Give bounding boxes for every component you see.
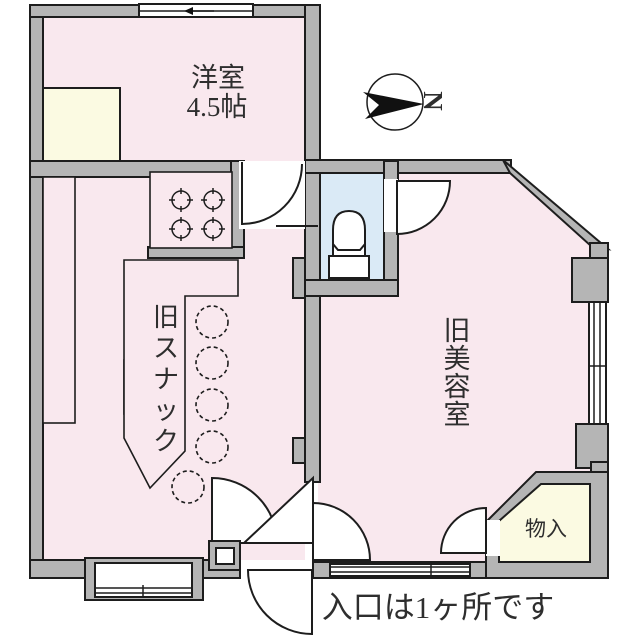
- window-right: [589, 302, 606, 424]
- side-counter: [43, 177, 75, 423]
- entrance-caption: 入口は1ヶ所です: [322, 590, 555, 625]
- window-bay-bottom-left: [95, 563, 192, 597]
- compass-north-label: N: [418, 91, 448, 111]
- stove-icon: [150, 172, 232, 248]
- window-top: [139, 4, 253, 17]
- room-western-label: 洋室: [191, 63, 245, 93]
- closet: [43, 88, 120, 161]
- floorplan-page: N 洋室 4.5帖 旧スナック 旧美容室 物入 入口は1ヶ所です: [0, 0, 640, 640]
- storage-label: 物入: [525, 517, 567, 541]
- room-western-size-label: 4.5帖: [187, 92, 248, 122]
- room-snack-label: 旧スナック: [153, 303, 179, 456]
- window-bottom: [330, 562, 470, 576]
- floorplan-svg: N 洋室 4.5帖 旧スナック 旧美容室 物入 入口は1ヶ所です: [0, 0, 640, 640]
- toilet-icon: [329, 211, 369, 278]
- room-salon-label: 旧美容室: [444, 316, 471, 430]
